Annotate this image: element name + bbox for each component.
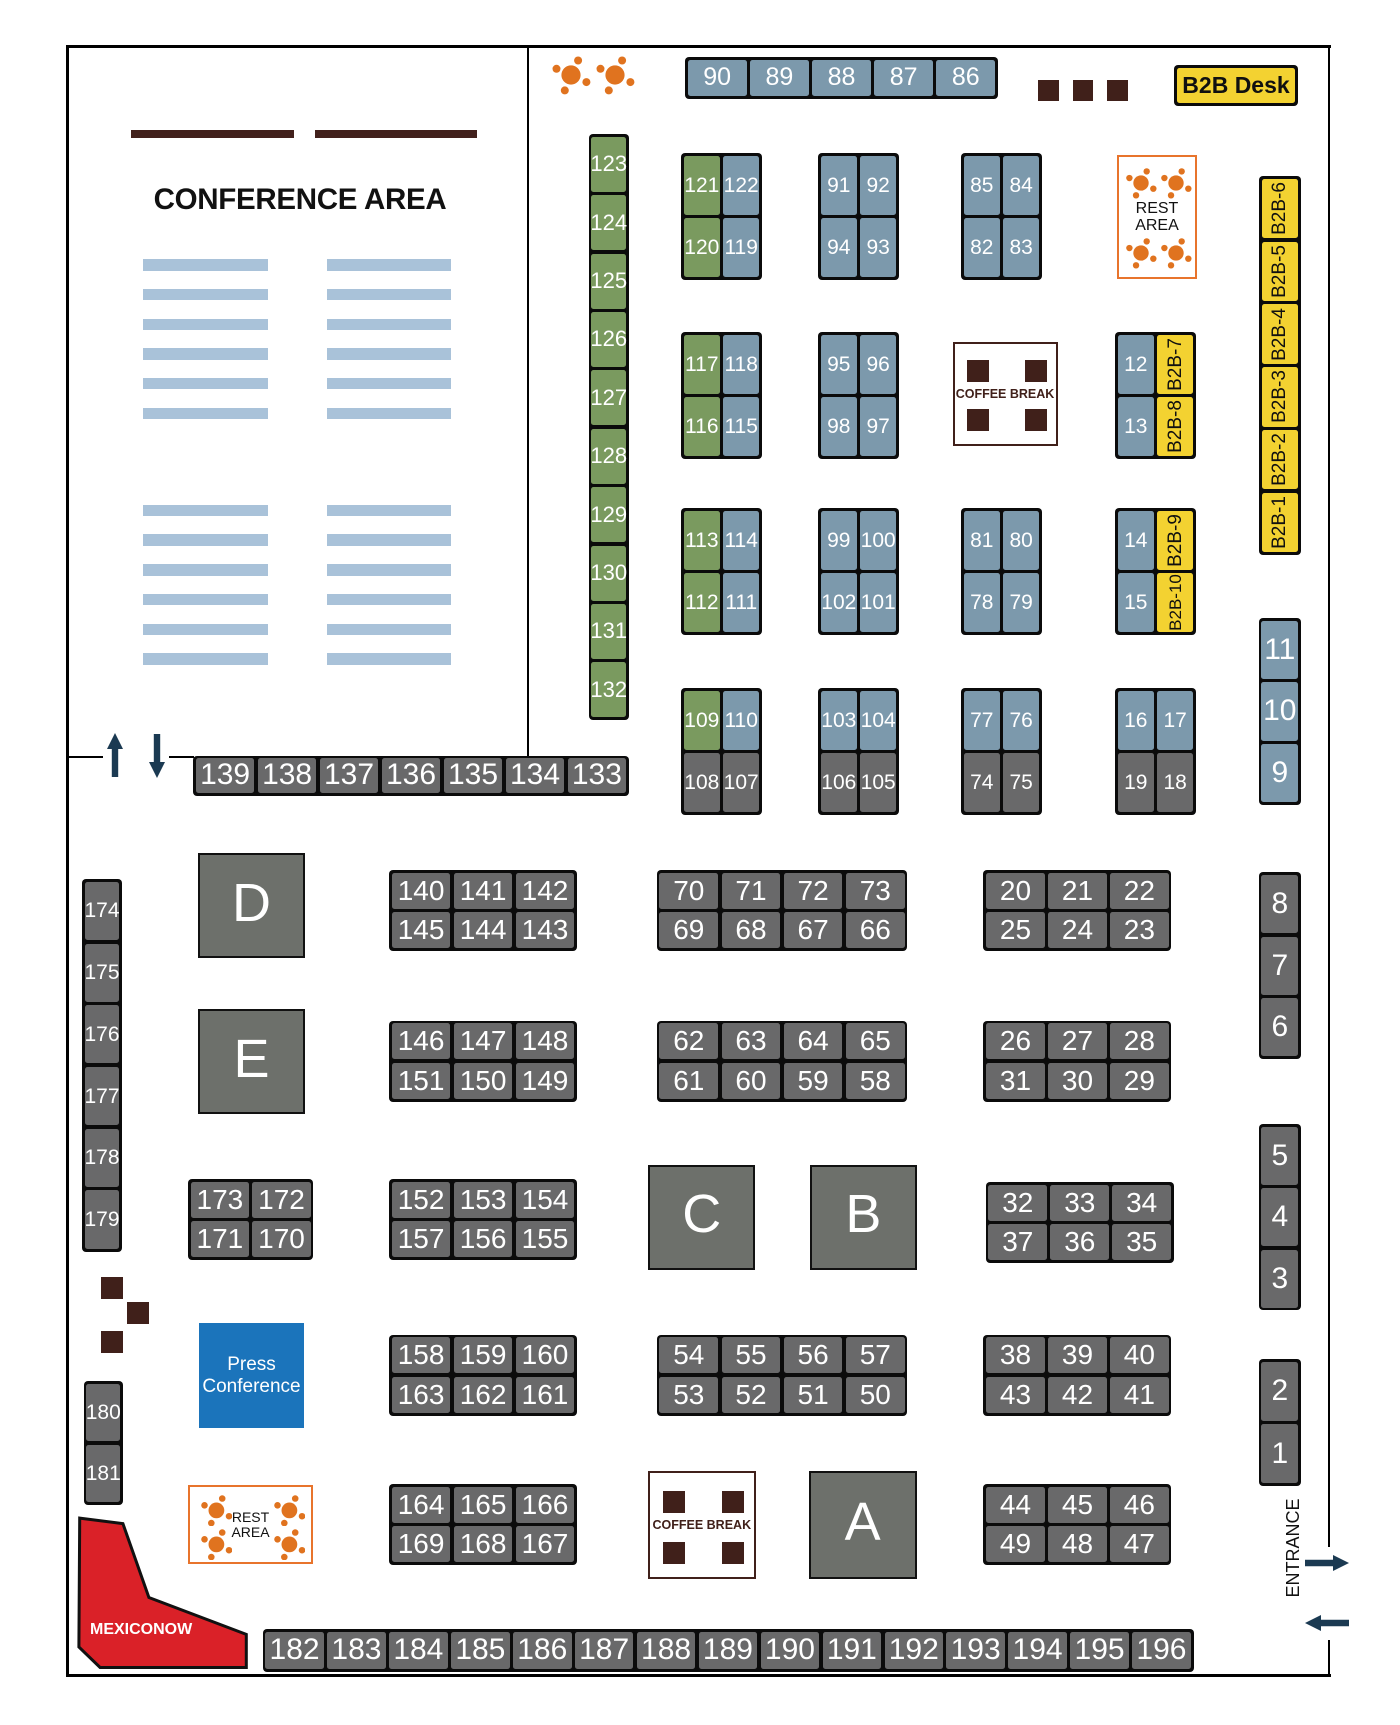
svg-text:MEXICONOW: MEXICONOW (90, 1621, 193, 1638)
